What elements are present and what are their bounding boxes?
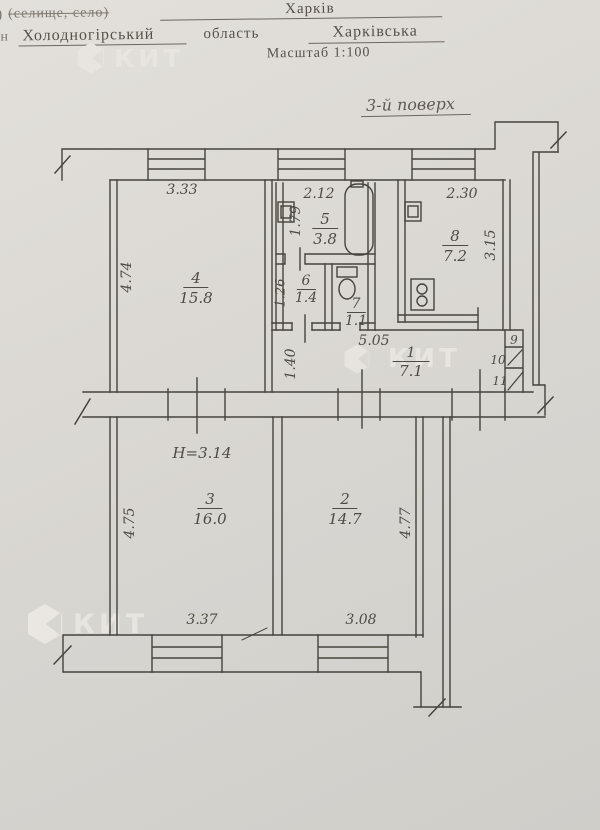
room2-label: 2 14.7 [328, 489, 361, 528]
dim-room3-height: 4.75 [122, 507, 138, 538]
room7-number: 7 [347, 297, 366, 313]
scanned-floor-plan-page: ) (селище, село) Харків н Холодногірськи… [0, 0, 600, 830]
bathtub-icon [345, 181, 373, 255]
dim-room4-width: 3.33 [166, 182, 197, 198]
room2-number: 2 [332, 491, 358, 509]
dim-room5-height: 1.79 [288, 205, 304, 236]
ceiling-height-label: H=3.14 [172, 444, 231, 462]
room5-number: 5 [312, 211, 338, 229]
kitchen-sink-icon [405, 202, 421, 221]
room6-number: 6 [297, 274, 316, 290]
hall-label: 1 7.1 [393, 342, 430, 380]
room4-area: 15.8 [179, 289, 212, 307]
room3-label: 3 16.0 [193, 489, 226, 528]
closet10-label: 10 [490, 353, 505, 367]
dim-room2-width: 3.08 [345, 612, 376, 628]
dim-room8-height: 3.15 [483, 229, 499, 260]
room7-label: 7 1.1 [345, 293, 367, 329]
room3-number: 3 [197, 491, 223, 509]
room5-label: 5 3.8 [312, 209, 338, 248]
closet11-label: 11 [492, 374, 507, 388]
dim-room8-width: 2.30 [446, 186, 477, 202]
floor-plan-drawing [0, 0, 600, 830]
dim-hall-height: 1.40 [283, 348, 299, 379]
dim-room5-width: 2.12 [303, 186, 334, 202]
stove-icon [411, 279, 434, 310]
wall-break-marks [54, 132, 566, 716]
hall-number: 1 [393, 346, 430, 362]
exterior-walls [62, 122, 558, 707]
dim-hall-width: 5.05 [358, 333, 389, 349]
room6-area: 1.4 [295, 291, 317, 306]
room2-area: 14.7 [328, 510, 361, 528]
room6-label: 6 1.4 [295, 270, 317, 306]
room3-area: 16.0 [193, 510, 226, 528]
room4-label: 4 15.8 [179, 268, 212, 307]
room8-label: 8 7.2 [442, 226, 468, 265]
room5-area: 3.8 [312, 230, 338, 248]
hall-area: 7.1 [393, 363, 430, 380]
dim-room3-width: 3.37 [186, 612, 217, 628]
room4-number: 4 [183, 270, 209, 288]
room7-area: 1.1 [345, 314, 367, 329]
closet9-label: 9 [510, 333, 518, 347]
room8-area: 7.2 [442, 247, 468, 265]
room8-number: 8 [442, 228, 468, 246]
dim-room6-height: 1.26 [274, 279, 289, 308]
dim-room4-height: 4.74 [119, 261, 135, 292]
dim-room2-height: 4.77 [398, 507, 414, 538]
